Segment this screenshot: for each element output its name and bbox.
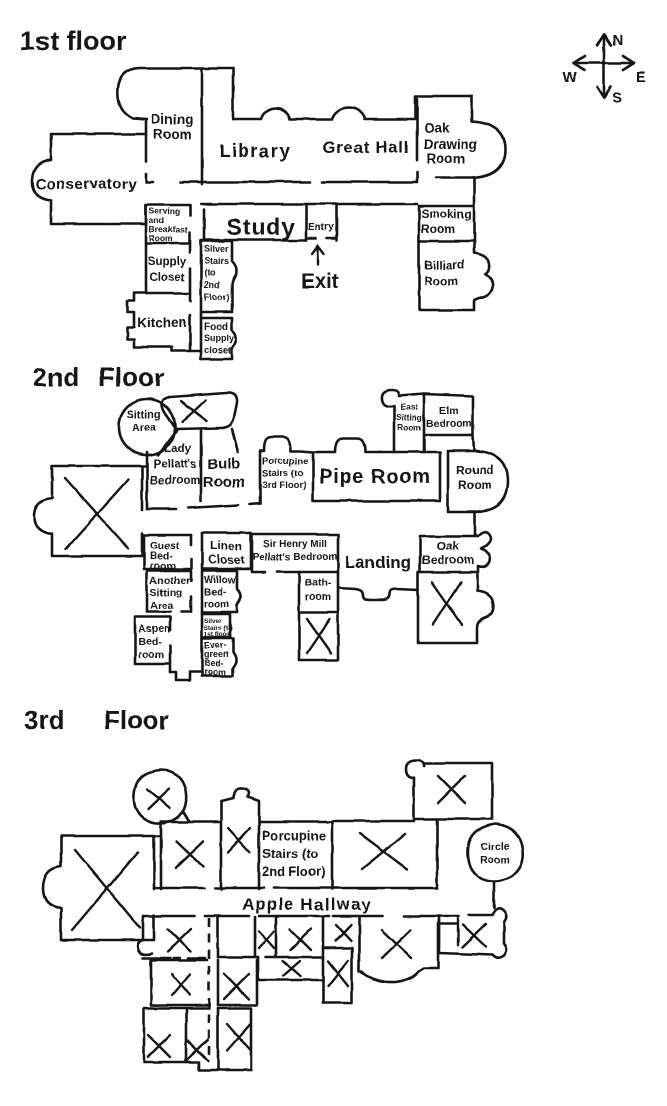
svg-text:Stairs (to: Stairs (to xyxy=(262,846,318,861)
svg-text:Area: Area xyxy=(150,600,174,612)
svg-text:3rd: 3rd xyxy=(24,705,64,735)
svg-text:Room: Room xyxy=(480,854,510,866)
svg-text:closet: closet xyxy=(204,345,232,356)
svg-text:Lady: Lady xyxy=(165,443,192,455)
svg-text:Bedroom: Bedroom xyxy=(426,418,472,430)
svg-text:Oak: Oak xyxy=(437,539,460,553)
svg-text:Room: Room xyxy=(421,222,455,236)
svg-text:Area: Area xyxy=(132,422,157,434)
svg-text:W: W xyxy=(563,69,578,86)
svg-text:Aspen: Aspen xyxy=(138,623,170,635)
svg-text:Room: Room xyxy=(458,478,492,492)
svg-text:Another: Another xyxy=(150,575,190,587)
svg-text:Exit: Exit xyxy=(302,271,339,293)
svg-text:Sitting: Sitting xyxy=(150,587,183,599)
svg-text:Library: Library xyxy=(219,141,291,161)
svg-text:2nd: 2nd xyxy=(204,280,220,290)
svg-text:Supply: Supply xyxy=(148,256,187,268)
svg-text:Pellatt's: Pellatt's xyxy=(153,459,197,471)
svg-text:Sir Henry Mill: Sir Henry Mill xyxy=(263,539,327,550)
svg-text:2nd: 2nd xyxy=(33,362,79,392)
svg-text:Drawing: Drawing xyxy=(424,137,477,152)
svg-text:Study: Study xyxy=(227,214,296,240)
svg-text:(to: (to xyxy=(204,268,216,278)
svg-text:room: room xyxy=(204,667,227,677)
svg-text:E: E xyxy=(636,69,646,86)
svg-text:Room: Room xyxy=(153,127,191,142)
svg-text:Bulb: Bulb xyxy=(207,456,240,473)
svg-text:Willow: Willow xyxy=(204,575,236,586)
svg-text:Apple Hallway: Apple Hallway xyxy=(242,895,373,914)
svg-text:Floor: Floor xyxy=(104,705,169,735)
svg-text:room: room xyxy=(150,560,176,572)
svg-text:room: room xyxy=(138,649,164,661)
svg-text:Sitting: Sitting xyxy=(396,412,422,422)
svg-text:Pellatt's Bedroom: Pellatt's Bedroom xyxy=(253,552,338,563)
svg-text:room: room xyxy=(305,591,331,603)
svg-text:1st floor): 1st floor) xyxy=(204,631,232,638)
svg-text:Room: Room xyxy=(149,233,174,243)
svg-text:Entry: Entry xyxy=(308,221,335,233)
svg-text:N: N xyxy=(612,32,623,49)
svg-text:Closet: Closet xyxy=(208,553,245,567)
svg-text:Porcupine: Porcupine xyxy=(262,456,308,467)
svg-text:Dining: Dining xyxy=(151,112,193,127)
svg-text:Oak: Oak xyxy=(424,121,450,136)
svg-text:Supply: Supply xyxy=(204,333,234,343)
svg-text:Silver: Silver xyxy=(204,244,229,254)
svg-text:Bed-: Bed- xyxy=(138,636,162,648)
svg-text:Room: Room xyxy=(427,151,465,166)
svg-text:Elm: Elm xyxy=(439,405,458,417)
svg-text:Billiard: Billiard xyxy=(424,258,465,272)
svg-text:Great Hall: Great Hall xyxy=(323,139,409,157)
svg-text:Porcupine: Porcupine xyxy=(262,828,326,843)
svg-text:Landing: Landing xyxy=(345,553,411,572)
svg-text:3rd Floor): 3rd Floor) xyxy=(262,480,306,491)
svg-text:Silver: Silver xyxy=(204,618,222,625)
svg-text:Room: Room xyxy=(397,422,422,432)
svg-text:Smoking: Smoking xyxy=(421,207,472,221)
svg-text:Stairs: Stairs xyxy=(204,256,229,266)
svg-text:Bedroom: Bedroom xyxy=(422,553,475,567)
svg-text:Circle: Circle xyxy=(480,841,509,853)
svg-text:Linen: Linen xyxy=(210,539,242,553)
svg-text:East: East xyxy=(400,402,418,412)
svg-text:Room: Room xyxy=(203,474,246,491)
svg-text:Closet: Closet xyxy=(149,272,184,284)
svg-text:Bath-: Bath- xyxy=(305,577,332,589)
svg-text:Conservatory: Conservatory xyxy=(35,176,137,193)
svg-text:Sitting: Sitting xyxy=(127,409,161,421)
svg-text:S: S xyxy=(612,90,622,107)
svg-text:Bedroom: Bedroom xyxy=(150,475,200,487)
svg-text:room: room xyxy=(204,599,229,610)
svg-text:Food: Food xyxy=(204,322,228,333)
svg-text:1st floor: 1st floor xyxy=(20,26,127,56)
svg-text:2nd Floor): 2nd Floor) xyxy=(262,864,326,879)
svg-text:Kitchen: Kitchen xyxy=(137,315,187,330)
svg-text:Room: Room xyxy=(424,274,458,288)
svg-text:Bed-: Bed- xyxy=(204,587,226,598)
svg-text:Round: Round xyxy=(456,463,494,477)
svg-text:Floor): Floor) xyxy=(204,292,230,302)
svg-text:Stairs (to: Stairs (to xyxy=(262,468,303,479)
svg-text:Pipe Room: Pipe Room xyxy=(319,466,431,488)
svg-text:Floor: Floor xyxy=(99,362,164,392)
